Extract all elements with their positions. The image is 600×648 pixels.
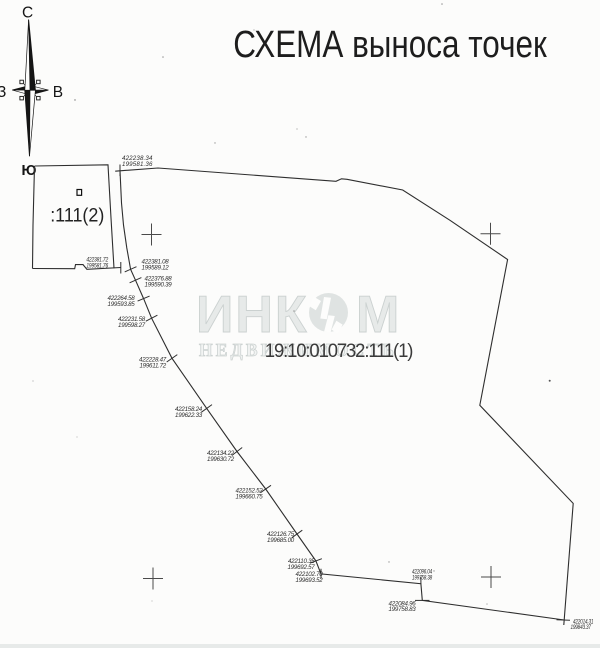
- svg-text:199622.33: 199622.33: [175, 412, 203, 419]
- svg-text:В: В: [53, 84, 63, 101]
- svg-text:199843.37: 199843.37: [571, 624, 592, 631]
- svg-text:ИНК: ИНК: [196, 286, 309, 344]
- svg-text:199589.12: 199589.12: [142, 265, 170, 272]
- svg-text:19:10:010732:111(1): 19:10:010732:111(1): [265, 341, 413, 363]
- svg-text:199692.57: 199692.57: [288, 564, 316, 571]
- svg-text:199685.00: 199685.00: [267, 537, 295, 544]
- svg-text:199693.52: 199693.52: [296, 577, 324, 584]
- svg-text:199630.72: 199630.72: [207, 456, 235, 463]
- svg-text:199758.38: 199758.38: [412, 575, 432, 582]
- svg-text:199590.39: 199590.39: [145, 282, 173, 289]
- svg-text:199758.83: 199758.83: [389, 606, 417, 613]
- svg-text:199581.36: 199581.36: [122, 161, 153, 168]
- svg-text:199593.85: 199593.85: [108, 301, 136, 308]
- svg-text::111(2): :111(2): [50, 204, 104, 226]
- svg-text:199660.75: 199660.75: [236, 494, 264, 501]
- svg-text:199581.76: 199581.76: [86, 263, 109, 270]
- svg-text:З: З: [0, 84, 6, 101]
- svg-text:199611.72: 199611.72: [139, 363, 166, 370]
- svg-text:199598.27: 199598.27: [118, 322, 146, 329]
- svg-text:М: М: [356, 286, 399, 344]
- svg-text:СХЕМА выноса точек: СХЕМА выноса точек: [233, 23, 547, 65]
- svg-text:С: С: [22, 4, 33, 21]
